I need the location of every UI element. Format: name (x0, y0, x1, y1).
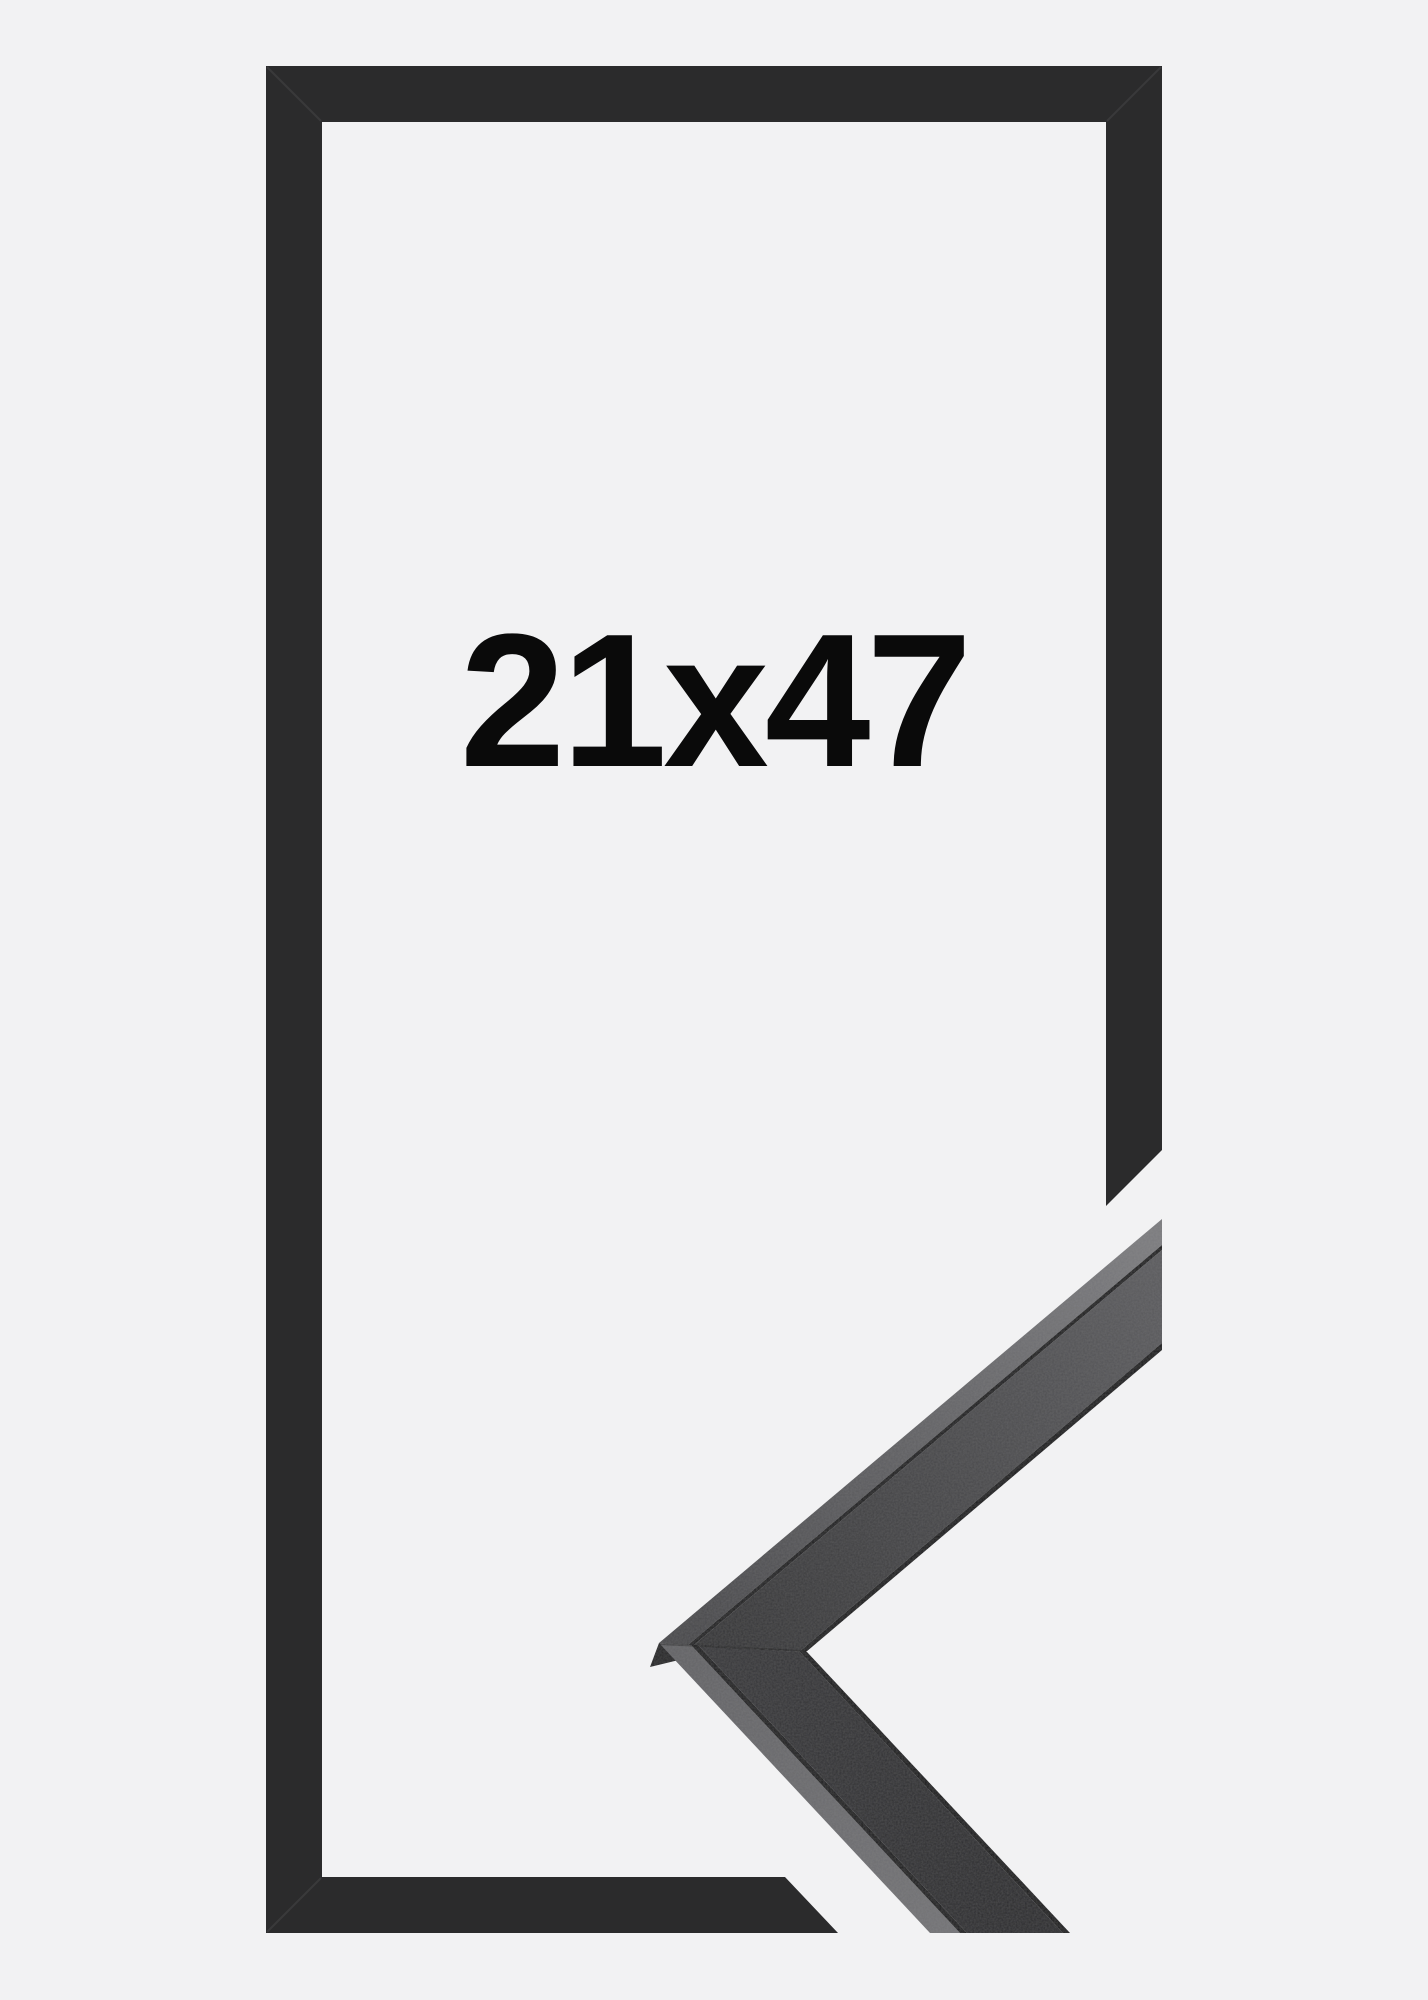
frame-product-figure: 21x47 (0, 0, 1428, 2000)
product-image: 21x47 (0, 0, 1428, 2000)
size-label: 21x47 (460, 595, 968, 807)
